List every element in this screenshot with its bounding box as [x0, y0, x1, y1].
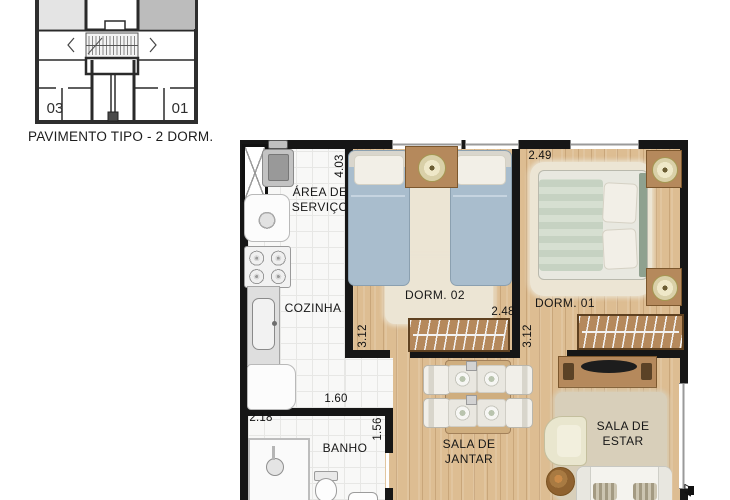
- pillow: [602, 228, 638, 270]
- dim-banho-width: 2.18: [244, 412, 278, 424]
- wall-bathroom-right-b: [385, 488, 393, 500]
- shower: [248, 438, 310, 500]
- dim-cozinha-width: 1.60: [318, 393, 354, 405]
- dorm02-wardrobe: [408, 318, 510, 352]
- kitchen-faucet: [272, 321, 277, 326]
- dim-servico-height: 4.03: [334, 148, 346, 184]
- bathroom-sink: [348, 492, 378, 500]
- shower-head: [266, 458, 284, 476]
- place-setting: [477, 365, 506, 393]
- blanket-fold: [351, 195, 405, 197]
- unit-label-left: 03: [47, 100, 64, 117]
- wardrobe-rail: [582, 331, 679, 333]
- toilet: [313, 471, 337, 500]
- room-label-sala-estar-line1: SALA DE: [588, 419, 658, 434]
- sofa-cushion: [593, 483, 617, 500]
- armchair: [544, 416, 587, 466]
- dim-dorm02-height: 3.12: [357, 319, 369, 353]
- dimension-tick: [688, 486, 694, 495]
- room-label-sala-jantar-line2: JANTAR: [434, 452, 504, 467]
- table-lamp: [418, 154, 446, 182]
- window-living: [679, 383, 688, 489]
- dim-banho-height: 1.56: [372, 412, 384, 446]
- key-plan-caption: PAVIMENTO TIPO - 2 DORM.: [28, 129, 212, 144]
- single-bed-left: [348, 150, 410, 286]
- kitchen-counter: [247, 286, 280, 366]
- condiment-set: [466, 395, 477, 405]
- pillow: [456, 155, 506, 185]
- toilet-bowl: [315, 478, 337, 500]
- room-label-dorm01: DORM. 01: [525, 296, 605, 311]
- laundry-tank-basin: [268, 154, 289, 181]
- dim-dorm01-width: 2.49: [523, 150, 557, 162]
- refrigerator: [247, 364, 296, 410]
- room-label-sala-estar: SALA DE ESTAR: [588, 419, 658, 449]
- unit-label-right: 01: [172, 100, 189, 117]
- window-dorm02-b: [465, 140, 519, 149]
- armchair-seat: [557, 425, 581, 457]
- sofa-cushion: [633, 483, 657, 500]
- dim-dorm01-height: 3.12: [522, 319, 534, 353]
- wall-vent: [268, 140, 288, 149]
- sofa-arm: [577, 467, 591, 500]
- laundry-tank: [262, 149, 294, 187]
- speaker: [563, 363, 574, 380]
- sofa: [576, 466, 672, 500]
- room-label-sala-jantar-line1: SALA DE: [434, 437, 504, 452]
- dorm01-nightstand-top: [646, 150, 682, 188]
- place-setting: [477, 399, 506, 427]
- headboard: [639, 173, 647, 277]
- double-bed: [538, 170, 648, 280]
- dining-chair: [505, 365, 533, 395]
- floor-plan-page: 03 01 PAVIMENTO TIPO - 2 DORM.: [0, 0, 730, 500]
- dorm01-nightstand-bottom: [646, 268, 682, 306]
- tv-rack: [558, 356, 657, 388]
- key-plan-drawing: 03 01: [28, 0, 203, 128]
- room-label-banho: BANHO: [310, 441, 380, 456]
- side-table: [546, 467, 575, 496]
- room-label-sala-jantar: SALA DE JANTAR: [434, 437, 504, 467]
- bathroom-door-leaf: [386, 453, 389, 488]
- dim-dorm02-width: 2.48: [486, 306, 520, 318]
- single-bed-right: [450, 150, 512, 286]
- highlighted-unit-right: [132, 0, 195, 29]
- dorm01-wardrobe: [577, 314, 684, 350]
- room-label-dorm02: DORM. 02: [395, 288, 475, 303]
- wardrobe-rail: [413, 334, 505, 336]
- apartment-plan: ÁREA DE SERVIÇO 4.03 COZINHA 1.60 BANHO …: [240, 140, 688, 500]
- room-label-sala-estar-line2: ESTAR: [588, 434, 658, 449]
- dining-chair: [505, 398, 533, 428]
- stove: [244, 246, 291, 288]
- pillow: [354, 155, 404, 185]
- wall-dorm-divider: [512, 140, 520, 358]
- blanket-fold: [453, 195, 507, 197]
- entry-stub: [108, 112, 118, 121]
- tv: [581, 360, 637, 373]
- room-label-cozinha: COZINHA: [277, 301, 349, 316]
- sofa-arm: [658, 467, 672, 500]
- pillow: [602, 182, 638, 224]
- condiment-set: [466, 361, 477, 371]
- table-lamp: [652, 157, 678, 183]
- speaker: [641, 363, 652, 380]
- dining-chair: [423, 365, 451, 395]
- bed-blanket: [539, 179, 603, 271]
- dining-chair: [423, 398, 451, 428]
- table-lamp: [652, 275, 678, 301]
- window-dorm01: [570, 140, 639, 149]
- wall-bathroom-right-a: [385, 416, 393, 453]
- key-plan: 03 01: [28, 0, 203, 128]
- dorm02-nightstand: [405, 146, 458, 188]
- shower-arm: [272, 446, 275, 460]
